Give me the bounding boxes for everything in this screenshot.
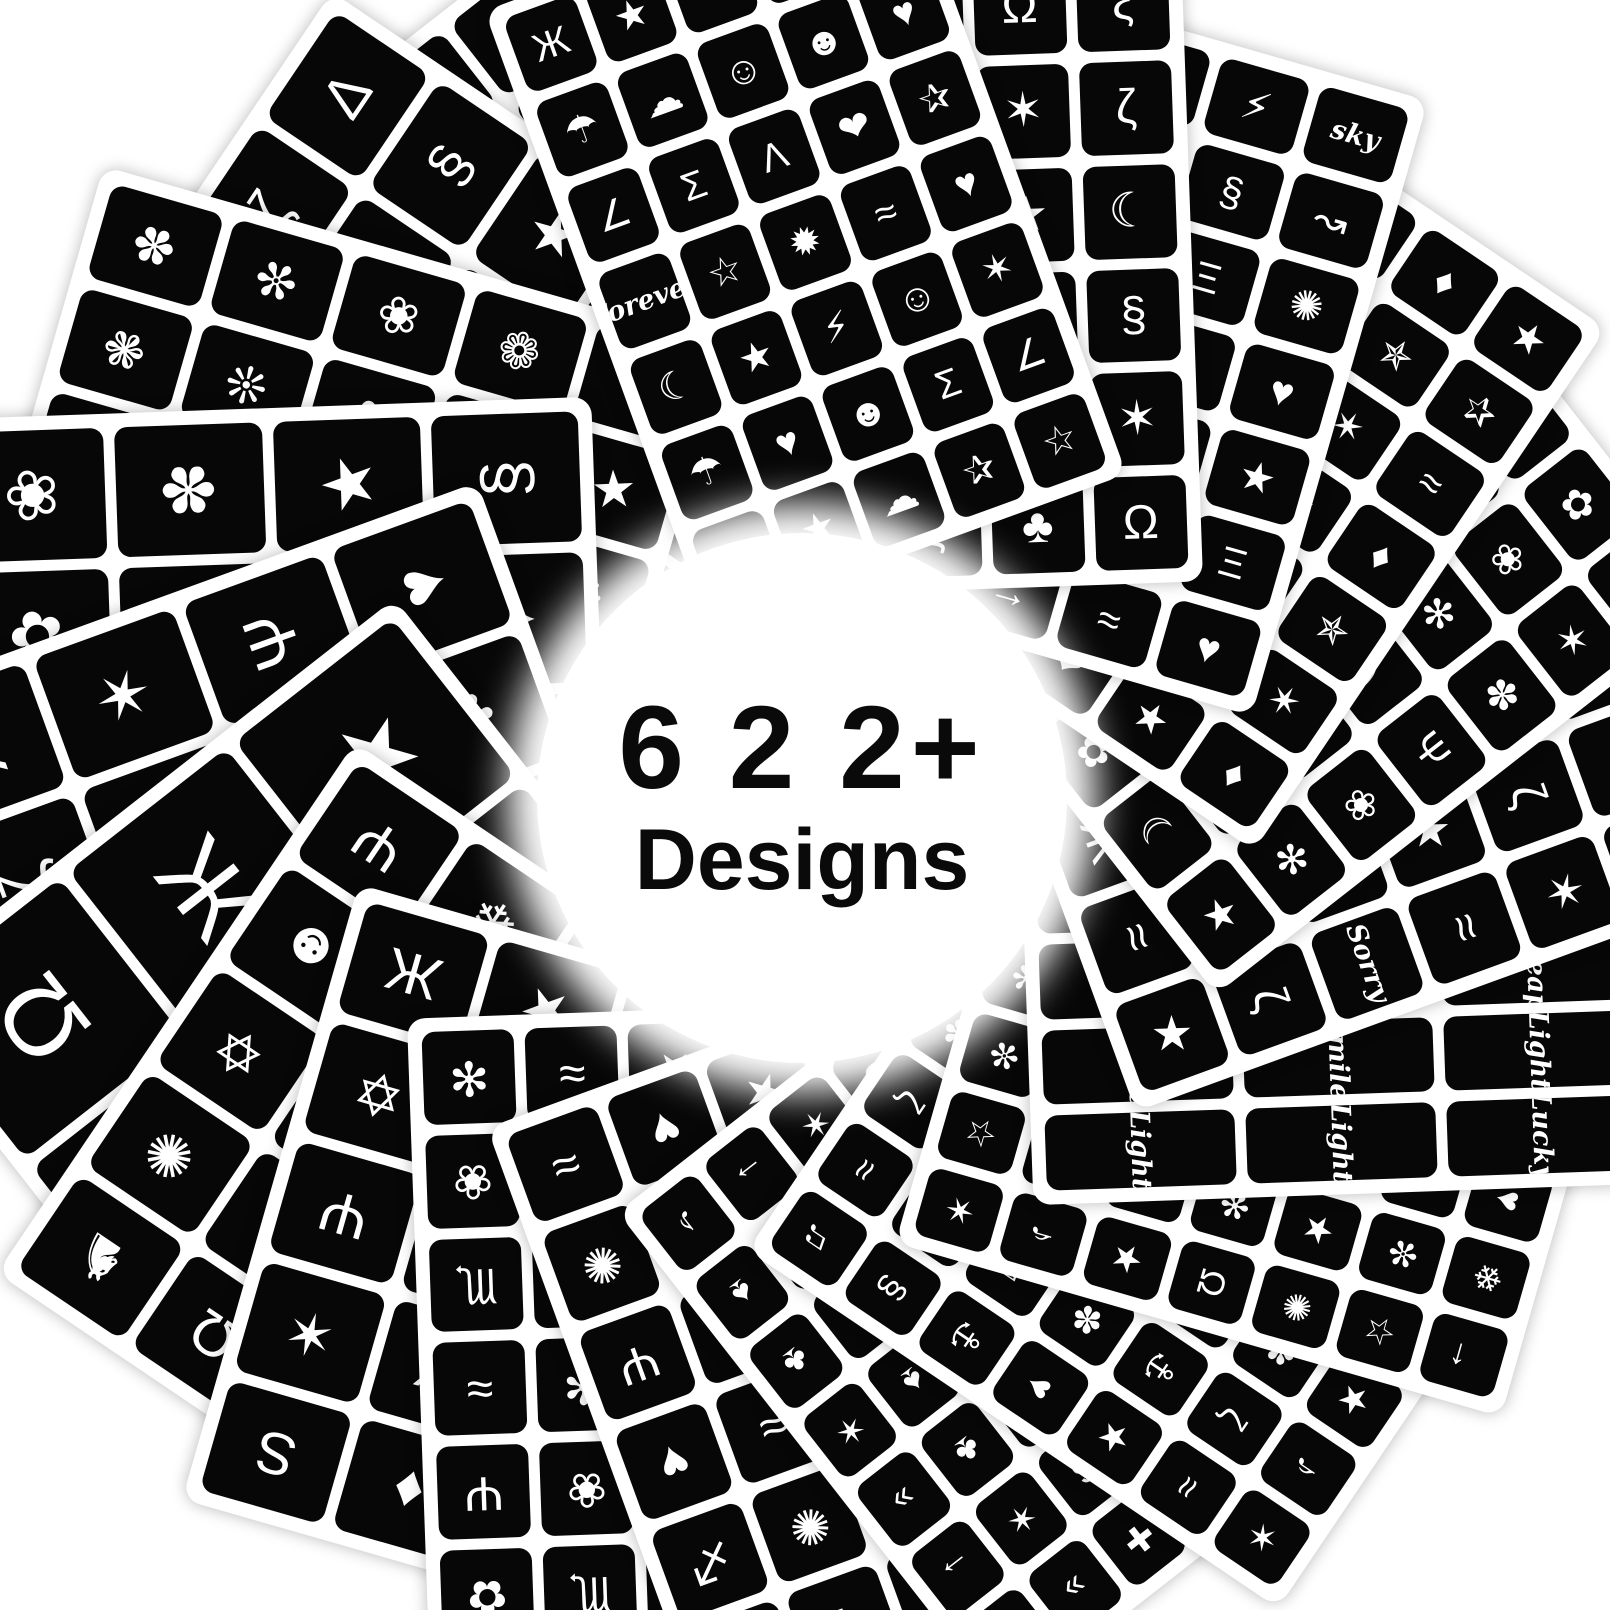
- stencil-glyph: ≈: [1110, 917, 1164, 958]
- stencil-glyph: ♣: [776, 1339, 817, 1382]
- stencil-glyph: ☾: [1130, 806, 1185, 860]
- stencil-glyph: Σ: [930, 362, 966, 407]
- stencil-script-word: Light: [1327, 1103, 1357, 1184]
- stencil-glyph: ♥: [886, 0, 921, 34]
- stencil-glyph: ♦: [1425, 260, 1464, 305]
- stencil-glyph: ✶: [1533, 865, 1592, 919]
- stencil-cell: ✺: [1251, 255, 1361, 355]
- stencil-cell: Light: [1443, 1010, 1610, 1091]
- stencil-glyph: ≈: [1410, 461, 1451, 506]
- stencil-glyph: ≈: [545, 1137, 587, 1192]
- stencil-cell: Λ: [725, 106, 823, 207]
- stencil-cell: ✰: [930, 419, 1028, 520]
- stencil-glyph: ✶: [1238, 1514, 1286, 1560]
- stencil-glyph: Ж: [0, 708, 18, 790]
- stencil-cell: Ψ: [268, 1141, 421, 1285]
- stencil-glyph: ∠: [590, 191, 636, 240]
- stencil-glyph: ☆: [701, 247, 747, 296]
- stencil-cell: ✶: [234, 1261, 387, 1405]
- stencil-glyph: §: [1120, 291, 1148, 340]
- stencil-glyph: ☂: [559, 105, 605, 154]
- stencil-glyph: ✶: [83, 656, 166, 733]
- stencil-glyph: →: [933, 1543, 984, 1594]
- stencil-cell: ✶: [913, 1167, 1006, 1255]
- stencil-glyph: ☾: [1108, 187, 1153, 236]
- stencil-cell: ☁: [613, 50, 711, 151]
- stencil-cell: ♥: [917, 133, 1015, 234]
- stencil-cell: ✼: [208, 218, 346, 343]
- stencil-glyph: ✺: [1284, 281, 1328, 330]
- stencil-glyph: ★: [1106, 1238, 1150, 1279]
- stencil-glyph: ☾: [688, 0, 734, 9]
- stencil-glyph: ★: [1503, 312, 1555, 365]
- stencil-glyph: ☁: [874, 474, 924, 524]
- stencil-script-word: Forever: [595, 268, 693, 332]
- stencil-glyph: ❀: [565, 1463, 607, 1512]
- stencil-cell: ★: [582, 0, 680, 65]
- stencil-glyph: ☾: [652, 362, 698, 411]
- stencil-glyph: ❀: [1334, 778, 1387, 830]
- stencil-cell: ♥: [613, 1401, 734, 1522]
- stencil-glyph: ★: [1193, 887, 1248, 941]
- stencil-glyph: ζ: [1214, 1402, 1254, 1436]
- stencil-glyph: Ξ: [1189, 254, 1226, 301]
- design-count-text: 6 2 2+: [618, 687, 985, 811]
- stencil-cell: ☆: [1011, 390, 1109, 491]
- stencil-cell: ★: [1202, 427, 1312, 527]
- stencil-cell: ♐: [649, 1500, 770, 1610]
- stencil-cell: ♏: [428, 1236, 523, 1332]
- stencil-glyph: ≈: [558, 1049, 586, 1098]
- stencil-glyph: ♣: [947, 1428, 988, 1471]
- center-badge: 6 2 2+ Designs: [537, 533, 1067, 1063]
- stencil-glyph: Ω: [1001, 0, 1039, 33]
- stencil-glyph: ζ: [1501, 777, 1553, 813]
- stencil-glyph: ☾: [1595, 731, 1610, 788]
- stencil-glyph: »: [1057, 1567, 1095, 1608]
- stencil-glyph: ♠: [724, 1272, 761, 1312]
- stencil-cell: ☆: [935, 1089, 1028, 1177]
- stencil-cell: ✰: [886, 47, 984, 148]
- stencil-glyph: ♥: [1489, 1185, 1529, 1215]
- stencil-cell: ★: [1272, 1186, 1365, 1274]
- stencil-glyph: ♫: [796, 1217, 842, 1261]
- stencil-glyph: ✿: [1551, 478, 1604, 530]
- stencil-glyph: ♥: [1019, 1369, 1062, 1408]
- stencil-cell: ★: [707, 307, 805, 408]
- stencil-cell: ✼: [1356, 1210, 1449, 1298]
- stencil-glyph: ⚓: [942, 1314, 991, 1362]
- stencil-glyph: ⚡: [817, 305, 856, 351]
- stencil-cell: ≈: [837, 162, 935, 263]
- stencil-cell: Lucky: [1446, 1096, 1610, 1177]
- stencil-glyph: ♦: [1215, 752, 1254, 797]
- stencil-glyph: ✻: [448, 1052, 490, 1101]
- stencil-glyph: ♐: [681, 1530, 739, 1591]
- stencil-cell: ❁: [451, 288, 589, 413]
- stencil-glyph: ≈: [466, 1364, 494, 1413]
- stencil-glyph: ♥: [948, 161, 983, 206]
- stencil-cell: ↝: [1276, 170, 1386, 270]
- stencil-glyph: ☂: [683, 448, 729, 497]
- stencil-glyph: ✰: [913, 74, 957, 122]
- stencil-glyph: §: [472, 458, 541, 498]
- stencil-glyph: ❁: [490, 323, 551, 378]
- stencil-glyph: Ψ: [1404, 723, 1457, 775]
- stencil-glyph: ✰: [1455, 385, 1505, 437]
- stencil-cell: §: [1086, 268, 1181, 364]
- stencil-glyph: ★: [1142, 1006, 1202, 1063]
- stencil-glyph: ★: [1090, 1414, 1139, 1462]
- stencil-glyph: ❀: [1481, 532, 1534, 584]
- stencil-cell: Sorry: [1308, 904, 1427, 1022]
- stencil-glyph: ✡: [347, 1059, 411, 1129]
- stencil-glyph: ♪: [670, 1203, 706, 1242]
- stencil-glyph: ☺: [717, 46, 768, 96]
- stencil-glyph: Ψ: [313, 1178, 377, 1248]
- stencil-cell: ☂: [658, 421, 756, 522]
- stencil-cell: Light: [1045, 1110, 1237, 1191]
- stencil-script-word: sky: [1328, 115, 1383, 155]
- stencil-glyph: ✺: [1275, 1288, 1318, 1327]
- stencil-glyph: ≈: [1438, 907, 1492, 948]
- stencil-cell: →: [1418, 1311, 1511, 1399]
- stencil-glyph: ✯: [1371, 329, 1421, 381]
- stencil-cell: ∠: [564, 164, 662, 265]
- stencil-cell: S: [199, 1381, 352, 1525]
- stencil-glyph: ✽: [155, 460, 225, 519]
- stencil-glyph: ζ: [1243, 981, 1295, 1017]
- stencil-cell: Ω: [1166, 1239, 1259, 1327]
- stencil-cell: ❃: [56, 288, 194, 413]
- stencil-cell: ☆: [1334, 1287, 1427, 1375]
- stencil-glyph: Ψ: [342, 806, 416, 882]
- stencil-glyph: →: [727, 1148, 778, 1199]
- stencil-cell: Σ: [899, 334, 997, 435]
- stencil-glyph: ★: [1297, 1209, 1341, 1250]
- stencil-glyph: ❃: [95, 323, 156, 378]
- stencil-glyph: Ж: [379, 938, 448, 1010]
- stencil-cell: ☂: [533, 79, 631, 180]
- stencil-script-word: Light: [1126, 1110, 1156, 1191]
- stencil-glyph: ❀: [368, 288, 429, 343]
- stencil-glyph: ♥: [1264, 368, 1299, 414]
- stencil-cell: ξ: [1075, 0, 1170, 52]
- stencil-glyph: ☁: [637, 75, 687, 125]
- stencil-glyph: Ω: [1122, 499, 1160, 548]
- designs-label: Designs: [635, 811, 970, 910]
- stencil-glyph: ♏: [454, 1259, 499, 1308]
- stencil-cell: ≈: [432, 1340, 527, 1436]
- stencil-glyph: ✺: [782, 1495, 837, 1555]
- stencil-glyph: Σ: [675, 163, 711, 208]
- stencil-cell: Forever: [595, 250, 693, 351]
- stencil-cell: ⚡: [787, 277, 885, 378]
- stencil-glyph: ≈: [844, 1152, 886, 1190]
- stencil-script-word: Light: [1525, 1010, 1555, 1091]
- stencil-cell: ❀: [329, 253, 467, 378]
- stencil-cell: ✶: [1503, 833, 1610, 951]
- stencil-glyph: ✶: [938, 1191, 981, 1230]
- stencil-glyph: ✯: [1308, 603, 1358, 655]
- stencil-cell: ≈: [505, 1104, 626, 1225]
- stencil-glyph: ✽: [1474, 669, 1527, 721]
- stencil-glyph: ☆: [960, 1113, 1004, 1154]
- stencil-cell: ♥: [738, 392, 836, 493]
- stencil-glyph: Δ: [312, 62, 383, 128]
- stencil-glyph: ❤: [832, 103, 876, 151]
- stencil-cell: ✿: [439, 1548, 534, 1610]
- stencil-cell: ❀: [0, 427, 108, 562]
- stencil-glyph: »: [885, 1479, 923, 1520]
- stencil-glyph: ★: [608, 0, 654, 39]
- stencil-cell: ★: [1081, 1215, 1174, 1303]
- stencil-glyph: Λ: [755, 134, 793, 180]
- stencil-cell: Ж: [502, 0, 600, 94]
- stencil-cell: ☻: [819, 363, 917, 464]
- stencil-glyph: Ω: [0, 956, 108, 1081]
- stencil-cell: ✽: [86, 183, 224, 308]
- stencil-glyph: S: [249, 1419, 303, 1487]
- stencil-cell: ✺: [1250, 1263, 1343, 1351]
- stencil-cell: ♏: [542, 1544, 637, 1610]
- stencil-cell: Ψ: [577, 1302, 698, 1423]
- stencil-cell: ⚡: [1201, 56, 1311, 156]
- stencil-glyph: ↝: [1309, 196, 1353, 245]
- stencil-glyph: ✶: [1003, 87, 1045, 136]
- stencil-glyph: ≈: [869, 191, 902, 235]
- stencil-cell: ∠: [979, 304, 1077, 405]
- stencil-glyph: ♪: [1024, 1221, 1064, 1248]
- stencil-cell: ☁: [850, 449, 948, 550]
- stencil-cell: Ω: [972, 0, 1067, 56]
- stencil-glyph: ✽: [125, 219, 186, 274]
- stencil-glyph: ✺: [574, 1234, 629, 1294]
- stencil-glyph: Ψ: [818, 1594, 873, 1610]
- stencil-cell: Ω: [1094, 475, 1189, 571]
- stencil-cell: Light: [1245, 1103, 1437, 1184]
- stencil-glyph: ≈: [1093, 597, 1126, 643]
- stencil-cell: §: [1177, 141, 1287, 241]
- stencil-glyph: ★: [1330, 1377, 1379, 1425]
- stencil-glyph: ✶: [278, 1298, 342, 1368]
- stencil-glyph: ❀: [451, 1156, 493, 1205]
- stencil-cell: ♥: [1153, 598, 1263, 698]
- stencil-glyph: ♥: [652, 1434, 696, 1490]
- stencil-glyph: ✼: [246, 253, 307, 308]
- stencil-glyph: ❄: [1465, 1258, 1508, 1297]
- stencil-glyph: ✶: [1545, 614, 1598, 666]
- stencil-glyph: ✼: [982, 1036, 1025, 1075]
- stencil-glyph: ★: [733, 333, 779, 382]
- stencil-cell: sky: [1300, 84, 1410, 184]
- stencil-glyph: ♥: [643, 1100, 687, 1156]
- stencil-glyph: ❀: [0, 465, 67, 524]
- stencil-cell: Σ: [645, 135, 743, 236]
- stencil-glyph: ☻: [797, 16, 849, 67]
- stencil-glyph: ★: [1125, 691, 1177, 744]
- stencil-cell: ❤: [806, 77, 904, 178]
- stencil-glyph: ✶: [827, 1406, 873, 1453]
- stencil-cell: ✶: [948, 219, 1046, 320]
- stencil-cell: ☺: [868, 248, 966, 349]
- stencil-script-word: Sorry: [1341, 920, 1394, 1006]
- stencil-glyph: ✿: [466, 1571, 508, 1610]
- stencil-cell: ✽: [114, 422, 266, 557]
- stencil-glyph: ❊: [216, 358, 277, 413]
- stencil-glyph: Ψ: [231, 602, 314, 679]
- stencil-glyph: ♦: [1362, 534, 1401, 579]
- stencil-glyph: §: [417, 135, 484, 195]
- stencil-glyph: ☻: [841, 388, 893, 439]
- stencil-glyph: Ξ: [1214, 539, 1251, 586]
- stencil-glyph: ✶: [975, 245, 1019, 293]
- stencil-glyph: ✰: [957, 446, 1001, 494]
- stencil-glyph: §: [1215, 169, 1248, 215]
- stencil-glyph: Ψ: [462, 1467, 504, 1516]
- stencil-glyph: ξ: [1112, 0, 1135, 29]
- stencil-glyph: ✼: [1381, 1234, 1424, 1273]
- stencil-glyph: ✽: [1063, 1297, 1111, 1343]
- stencil-glyph: ☆: [1359, 1311, 1403, 1352]
- stencil-glyph: ♥: [769, 420, 804, 465]
- stencil-glyph: ζ: [892, 1085, 932, 1119]
- stencil-glyph: ✶: [1259, 676, 1309, 728]
- stencil-script-word: Lucky: [1527, 1096, 1557, 1177]
- stencil-cell: Ψ: [436, 1444, 531, 1540]
- stencil-glyph: ✻: [1264, 833, 1317, 885]
- stencil-cell: ♥: [855, 0, 953, 63]
- stencil-cell: ✻: [421, 1029, 516, 1125]
- stencil-glyph: ♥: [1191, 625, 1226, 671]
- stencil-cell: ♥: [1227, 341, 1337, 441]
- stencil-glyph: ✺: [133, 1116, 207, 1193]
- stencil-cell: ≈: [1405, 869, 1524, 987]
- stencil-glyph: ★: [313, 452, 383, 515]
- product-image: Ж★☾⚡✶☂☁☺☻♥∠ΣΛ❤✰Forever☆✹≈♥☾★⚡☺✶☂♥☻Σ∠❤★☁✰…: [0, 0, 1610, 1610]
- stencil-glyph: ✹: [783, 218, 827, 266]
- stencil-glyph: ♞: [62, 1218, 139, 1296]
- stencil-glyph: §: [872, 1270, 914, 1308]
- stencil-cell: ☆: [676, 221, 774, 322]
- stencil-glyph: ♏: [568, 1567, 613, 1610]
- stencil-glyph: ♪: [1288, 1451, 1329, 1487]
- stencil-glyph: ζ: [1115, 84, 1138, 133]
- stencil-cell: ✹: [756, 192, 854, 293]
- stencil-glyph: Ψ: [610, 1333, 665, 1393]
- stencil-glyph: ✶: [1117, 395, 1159, 444]
- stencil-cell: ❄: [1440, 1234, 1533, 1322]
- stencil-cell: ★: [1113, 975, 1232, 1093]
- stencil-glyph: →: [1442, 1333, 1487, 1378]
- stencil-cell: ☺: [694, 20, 792, 121]
- stencil-cell: ☾: [627, 336, 725, 437]
- stencil-glyph: ⚓: [1136, 1346, 1185, 1394]
- stencil-glyph: ✡: [202, 1013, 276, 1090]
- stencil-glyph: ✶: [999, 1495, 1045, 1542]
- stencil-glyph: ∠: [1005, 330, 1051, 379]
- stencil-glyph: ★: [1234, 452, 1281, 502]
- stencil-cell: ζ: [1079, 60, 1174, 156]
- stencil-glyph: Ω: [1191, 1265, 1233, 1301]
- stencil-cell: ☾: [1083, 164, 1178, 260]
- stencil-glyph: ☆: [1036, 416, 1082, 465]
- stencil-cell: ♪: [997, 1191, 1090, 1279]
- stencil-glyph: ≈: [1167, 1469, 1209, 1507]
- stencil-cell: ☻: [774, 0, 872, 92]
- stencil-glyph: ☺: [891, 273, 942, 323]
- stencil-glyph: Ж: [527, 19, 574, 68]
- stencil-glyph: ⚡: [1237, 82, 1276, 129]
